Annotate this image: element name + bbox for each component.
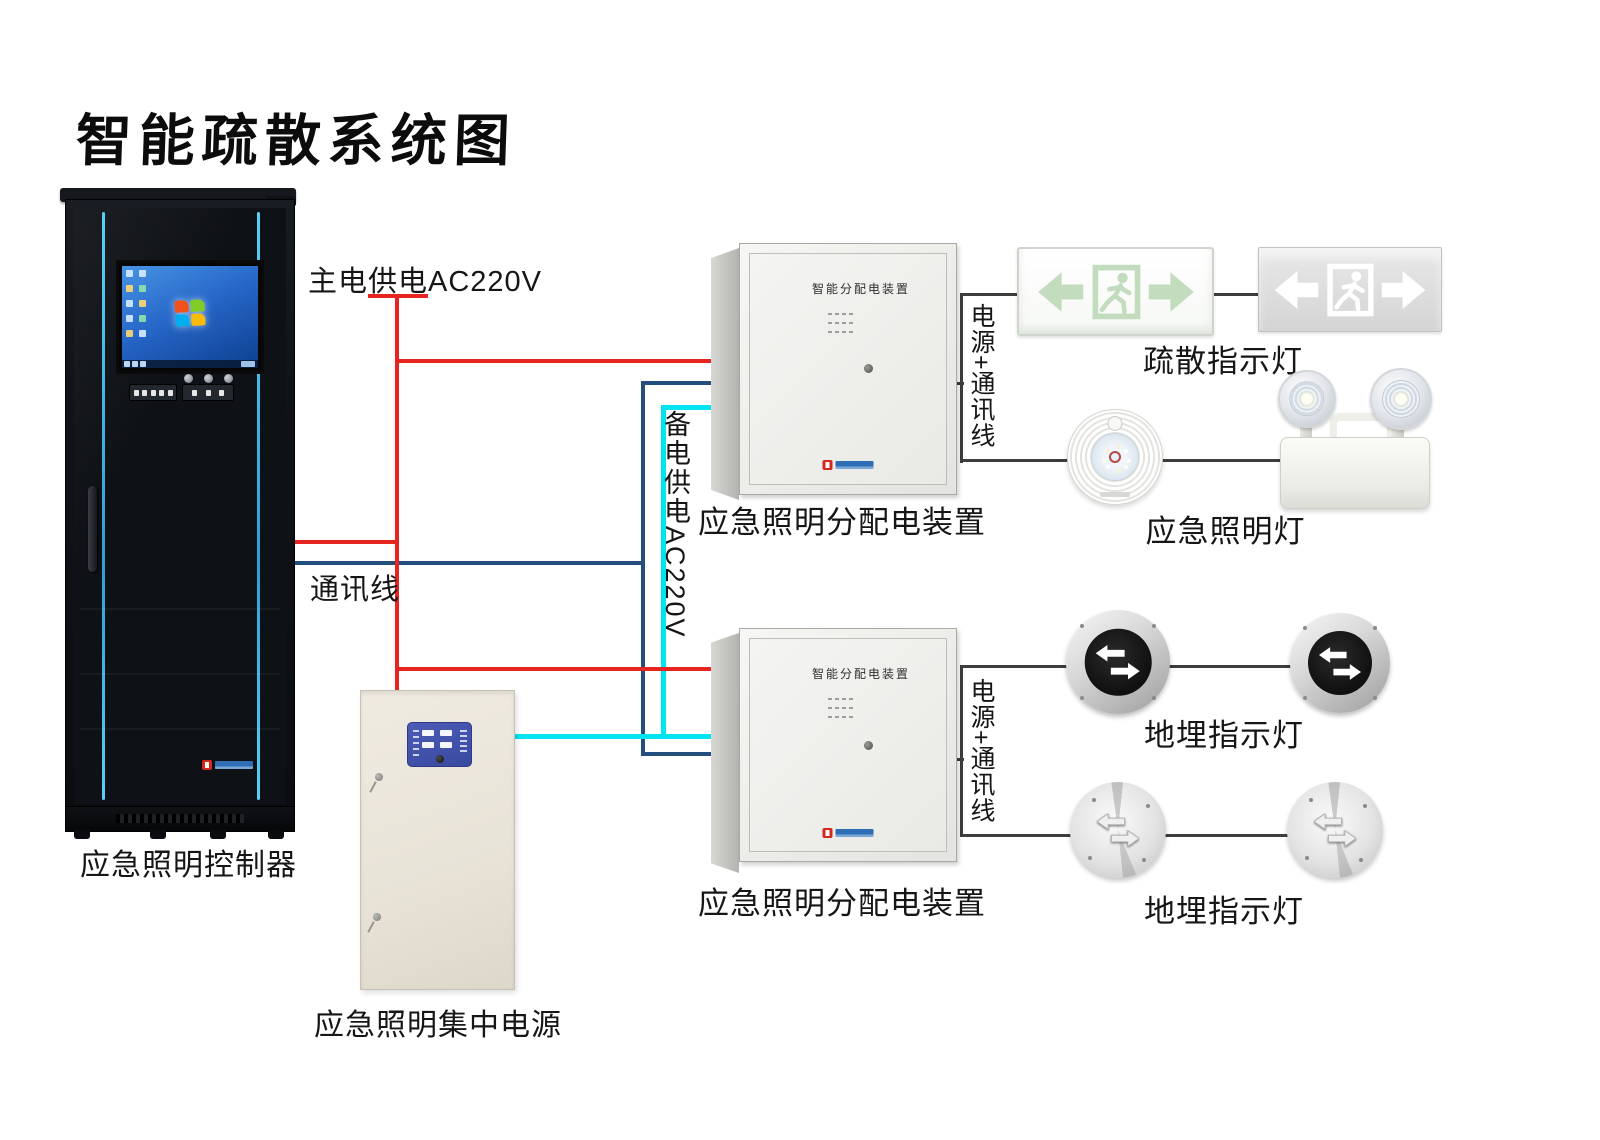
central-power-control-panel: [407, 722, 472, 767]
windows-logo-icon: [174, 299, 205, 327]
rack-foot: [268, 830, 284, 839]
display-segment: [422, 742, 434, 748]
dist-box1-side: [711, 248, 739, 500]
emergency-lamps-label: 应急照明灯: [1143, 506, 1308, 551]
comm-wire-horizontal: [292, 561, 644, 565]
exit-sign-1: [1017, 247, 1214, 336]
rack-accent-left: [102, 212, 105, 800]
twin-lamp-head-icon: [1370, 368, 1432, 430]
dist-box1-indicators: [828, 310, 878, 336]
bus1-label: 电源+通讯线: [963, 303, 999, 449]
arrow-right-icon: [1148, 272, 1193, 311]
double-arrow-icon: [1097, 814, 1139, 847]
controller-monitor: [116, 260, 264, 374]
rack-door: [74, 208, 286, 804]
lamp-test-button-icon: [1108, 416, 1123, 431]
controller-cabinet: [65, 199, 295, 813]
main-power-label: 主电供电AC220V: [308, 258, 542, 300]
dist-box1: 智能分配电装置: [739, 243, 957, 495]
twin-lamp-head-icon: [1278, 370, 1336, 428]
exit-signs-label: 疏散指示灯: [1143, 336, 1303, 381]
rack-foot: [74, 830, 90, 839]
exit-sign1-to-sign2: [1208, 293, 1260, 296]
double-arrow-icon: [1319, 647, 1361, 680]
rack-knob-icon: [204, 374, 213, 383]
monitor-taskbar: [122, 360, 258, 368]
display-segment: [440, 730, 452, 736]
dist-box1-brand-logo: [823, 460, 874, 470]
panel-knob-icon: [436, 755, 444, 763]
bus2-label: 电源+通讯线: [963, 678, 999, 824]
cabinet-key-icon: [369, 781, 376, 793]
dist-box1-label: 应急照明分配电装置: [698, 497, 978, 542]
main-power-to-box1: [397, 359, 719, 363]
panel-indicator-dots: [460, 730, 467, 754]
ground-lights-row2-label: 地埋指示灯: [1144, 886, 1304, 931]
ground2a-to-ground2b: [1164, 834, 1290, 837]
running-man-icon: [1101, 272, 1128, 311]
ground-lights-row1-label: 地埋指示灯: [1144, 710, 1304, 755]
dist-box2-door: 智能分配电装置: [749, 638, 947, 852]
central-power-cabinet: [360, 690, 515, 990]
rack-brand-logo: [202, 760, 253, 770]
monitor-screen: [122, 266, 258, 368]
rack-shelf-line: [80, 728, 280, 730]
arrow-left-icon: [1275, 270, 1319, 308]
rack-indicator-panel: [182, 384, 234, 401]
rack-vent: [65, 806, 295, 832]
bus1-to-exit-sign: [960, 293, 1018, 296]
arrow-left-icon: [1038, 272, 1083, 311]
ground-light-silver-2: [1287, 782, 1383, 878]
arrow-right-icon: [1382, 270, 1426, 308]
bus2-to-ground2: [960, 834, 1072, 837]
dist-box2-lock-icon: [864, 741, 873, 750]
bus2-to-ground1: [960, 665, 1070, 668]
comm-wire-to-box2: [643, 752, 719, 756]
round-lamp-to-twin-lamp: [1158, 459, 1282, 462]
display-segment: [422, 730, 434, 736]
rack-foot: [210, 830, 226, 839]
running-man-icon: [1336, 271, 1362, 309]
panel-indicator-dots: [413, 730, 419, 756]
rack-indicator-panel: [129, 384, 177, 401]
comm-wire-vertical: [641, 381, 645, 756]
double-arrow-icon: [1096, 644, 1140, 679]
double-arrow-icon: [1314, 814, 1356, 847]
lamp-brand-strip: [1100, 492, 1130, 497]
cabinet-key-icon: [367, 921, 374, 933]
controller-label: 应急照明控制器: [80, 840, 292, 884]
page-title: 智能疏散系统图: [75, 96, 519, 177]
main-power-to-rack: [292, 540, 399, 544]
main-power-to-box2: [397, 667, 719, 671]
ground-light-black-2: [1290, 613, 1390, 713]
cabinet-lock-icon: [375, 773, 383, 781]
exit-pictogram-icon: [1036, 262, 1196, 322]
bus1-to-round-lamp: [960, 459, 1068, 462]
rack-knob-icon: [224, 374, 233, 383]
rack-knob-icon: [184, 374, 193, 383]
main-power-vertical: [395, 296, 399, 692]
dist-box2: 智能分配电装置: [739, 628, 957, 862]
rack-shelf-line: [80, 673, 280, 675]
backup-power-label: 备电供电AC220V: [656, 410, 695, 639]
exit-sign-2: [1258, 247, 1442, 332]
ground-light-face: [1308, 631, 1372, 695]
ground-light-face: [1085, 629, 1152, 696]
comm-wire-to-box1: [643, 381, 719, 385]
rack-foot: [150, 830, 166, 839]
rack-shelf-line: [80, 608, 280, 610]
lamp-center-icon: [1109, 451, 1121, 463]
dist-box2-indicators: [828, 695, 878, 721]
evacuation-system-diagram: 智能疏散系统图 主电供电AC220V 通讯线 备电供电AC220V 电源+通讯线…: [0, 0, 1600, 1140]
dist-box1-lock-icon: [864, 364, 873, 373]
dist-box2-side: [711, 633, 739, 873]
round-emergency-lamp: [1067, 409, 1163, 505]
ground-light-black-1: [1066, 610, 1170, 714]
backup-wire-horizontal: [512, 734, 719, 739]
twin-head-emergency-lamp: [1280, 437, 1430, 509]
dist-box1-panel-title: 智能分配电装置: [750, 280, 946, 297]
dist-box2-label: 应急照明分配电装置: [698, 878, 978, 923]
ground1a-to-ground1b: [1168, 665, 1292, 668]
cabinet-lock-icon: [373, 913, 381, 921]
dist-box1-door: 智能分配电装置: [749, 253, 947, 485]
rack-door-handle: [88, 486, 97, 572]
desktop-icons: [126, 270, 148, 350]
comm-line-label: 通讯线: [310, 566, 400, 608]
ground-light-silver-1: [1070, 782, 1166, 878]
central-power-label: 应急照明集中电源: [313, 1000, 563, 1044]
dist-box2-brand-logo: [823, 828, 874, 838]
dist-box2-panel-title: 智能分配电装置: [750, 665, 946, 682]
display-segment: [440, 742, 452, 748]
exit-pictogram-icon: [1272, 261, 1428, 319]
